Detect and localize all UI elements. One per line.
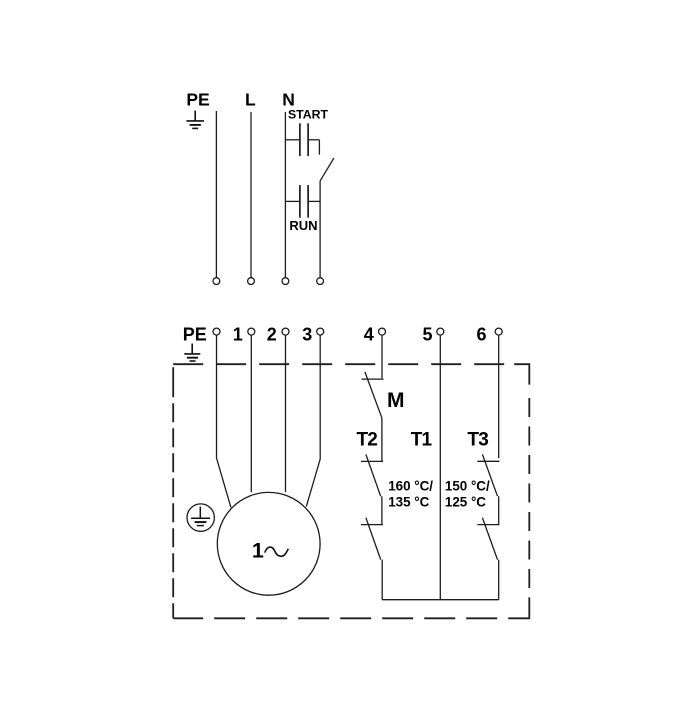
svg-text:2: 2 [267,325,277,345]
svg-text:135 °C: 135 °C [388,495,429,510]
svg-text:125 °C: 125 °C [445,495,486,510]
svg-text:PE: PE [186,90,209,110]
svg-text:T3: T3 [467,430,488,451]
svg-text:160 °C/: 160 °C/ [388,479,433,494]
svg-text:6: 6 [476,325,486,345]
svg-text:M: M [387,389,405,412]
svg-text:T1: T1 [411,430,433,451]
svg-text:5: 5 [422,325,432,345]
svg-text:1: 1 [252,539,264,563]
svg-text:START: START [288,108,329,122]
svg-text:T2: T2 [357,430,378,451]
svg-text:1: 1 [233,325,243,345]
svg-text:PE: PE [183,325,207,345]
svg-text:RUN: RUN [289,218,317,233]
svg-text:3: 3 [302,325,312,345]
svg-text:150 °C/: 150 °C/ [445,479,490,494]
svg-text:L: L [245,90,256,110]
svg-text:4: 4 [364,325,374,345]
